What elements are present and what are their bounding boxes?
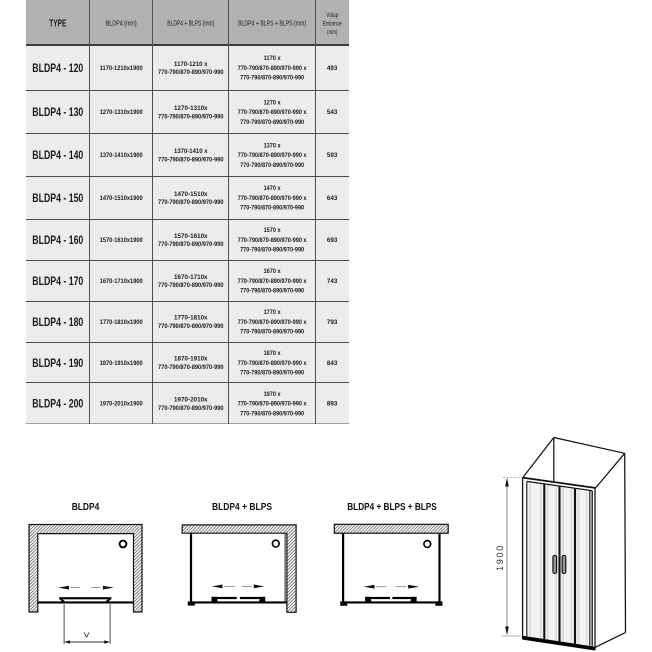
svg-text:643: 643: [327, 195, 338, 202]
svg-text:1870-1910x1900: 1870-1910x1900: [100, 360, 144, 367]
svg-text:1970 x: 1970 x: [264, 391, 281, 398]
svg-text:1370-1410 x: 1370-1410 x: [174, 148, 208, 155]
svg-text:543: 543: [327, 109, 338, 116]
svg-text:Vstup: Vstup: [326, 12, 338, 19]
svg-text:BLDP4 (mm): BLDP4 (mm): [106, 19, 137, 28]
svg-text:TYPE: TYPE: [49, 19, 66, 30]
svg-text:1470-1510x: 1470-1510x: [174, 191, 208, 198]
svg-text:BLDP4 - 200: BLDP4 - 200: [32, 399, 83, 411]
svg-text:BLDP4 - 130: BLDP4 - 130: [32, 107, 83, 119]
svg-text:493: 493: [327, 65, 338, 72]
svg-text:1370-1410x1900: 1370-1410x1900: [100, 152, 144, 159]
svg-text:(mm): (mm): [327, 29, 338, 36]
svg-text:770-790/870-890/970-990 x: 770-790/870-890/970-990 x: [238, 360, 307, 367]
svg-text:BLDP4 - 160: BLDP4 - 160: [32, 235, 83, 247]
svg-text:1900: 1900: [495, 544, 505, 571]
svg-text:1270-1310x: 1270-1310x: [174, 105, 208, 112]
svg-text:770-790/870-890/970-990 x: 770-790/870-890/970-990 x: [238, 195, 307, 202]
svg-text:770-790/870-890/970-990: 770-790/870-890/970-990: [240, 205, 304, 212]
svg-text:1370 x: 1370 x: [264, 142, 281, 149]
svg-text:770-790/870-890/970-990: 770-790/870-890/970-990: [158, 113, 224, 120]
svg-text:1670-1710x1900: 1670-1710x1900: [100, 278, 144, 285]
svg-text:1770 x: 1770 x: [264, 309, 281, 316]
svg-text:BLDP4 - 180: BLDP4 - 180: [32, 317, 83, 329]
svg-text:BLDP4 - 170: BLDP4 - 170: [32, 276, 83, 288]
svg-text:BLDP4 - 190: BLDP4 - 190: [32, 358, 83, 370]
svg-text:1270 x: 1270 x: [264, 100, 281, 107]
svg-text:BLDP4 - 120: BLDP4 - 120: [32, 63, 83, 75]
svg-text:770-790/870-890/970-990: 770-790/870-890/970-990: [158, 405, 224, 412]
svg-text:1770-1810x: 1770-1810x: [174, 315, 208, 322]
svg-text:770-790/870-890/970-990: 770-790/870-890/970-990: [158, 364, 224, 371]
svg-text:770-790/870-890/970-990: 770-790/870-890/970-990: [158, 156, 224, 163]
svg-text:770-790/870-890/970-990 x: 770-790/870-890/970-990 x: [238, 65, 307, 72]
svg-text:770-790/870-890/970-990: 770-790/870-890/970-990: [240, 369, 304, 376]
svg-text:1570 x: 1570 x: [264, 227, 281, 234]
svg-text:BLDP4 - 150: BLDP4 - 150: [32, 193, 83, 205]
svg-text:1170-1210x1900: 1170-1210x1900: [100, 65, 144, 72]
svg-text:V: V: [84, 633, 90, 640]
svg-text:1570-1610x1900: 1570-1610x1900: [100, 237, 144, 244]
svg-text:693: 693: [327, 237, 338, 244]
svg-text:743: 743: [327, 278, 338, 285]
svg-text:770-790/870-890/970-990: 770-790/870-890/970-990: [240, 410, 304, 417]
svg-text:793: 793: [327, 319, 338, 326]
svg-text:Entrance: Entrance: [323, 21, 342, 28]
svg-text:BLDP4 + BLPS (mm): BLDP4 + BLPS (mm): [167, 19, 214, 28]
svg-text:1870-1910x: 1870-1910x: [174, 356, 208, 363]
svg-text:1170-1210 x: 1170-1210 x: [174, 61, 208, 68]
svg-text:1870 x: 1870 x: [264, 350, 281, 357]
svg-text:770-790/870-890/970-990: 770-790/870-890/970-990: [240, 329, 304, 336]
svg-text:770-790/870-890/970-990 x: 770-790/870-890/970-990 x: [238, 109, 307, 116]
svg-text:770-790/870-890/970-990: 770-790/870-890/970-990: [158, 282, 224, 289]
svg-text:770-790/870-890/970-990: 770-790/870-890/970-990: [240, 162, 304, 169]
svg-text:593: 593: [327, 152, 338, 159]
svg-text:1670 x: 1670 x: [264, 268, 281, 275]
svg-text:770-790/870-890/970-990 x: 770-790/870-890/970-990 x: [238, 152, 307, 159]
svg-text:843: 843: [327, 360, 338, 367]
svg-text:770-790/870-890/970-990: 770-790/870-890/970-990: [158, 199, 224, 206]
svg-text:1570-1610x: 1570-1610x: [174, 233, 208, 240]
svg-text:893: 893: [327, 401, 338, 408]
svg-text:770-790/870-890/970-990 x: 770-790/870-890/970-990 x: [238, 401, 307, 408]
svg-text:1170 x: 1170 x: [264, 55, 282, 62]
svg-text:770-790/870-890/970-990: 770-790/870-890/970-990: [240, 75, 304, 82]
svg-text:770-790/870-890/970-990: 770-790/870-890/970-990: [158, 69, 224, 76]
svg-text:1470 x: 1470 x: [264, 185, 281, 192]
svg-text:770-790/870-890/970-990: 770-790/870-890/970-990: [158, 323, 224, 330]
svg-text:770-790/870-890/970-990: 770-790/870-890/970-990: [158, 241, 224, 248]
svg-text:770-790/870-890/970-990 x: 770-790/870-890/970-990 x: [238, 319, 307, 326]
svg-text:1470-1510x1900: 1470-1510x1900: [100, 195, 144, 202]
svg-text:BLDP4: BLDP4: [72, 501, 100, 513]
svg-text:1770-1810x1900: 1770-1810x1900: [100, 319, 144, 326]
svg-text:BLDP4 - 140: BLDP4 - 140: [32, 150, 83, 162]
svg-text:1270-1310x1900: 1270-1310x1900: [100, 109, 144, 116]
svg-text:1970-2010x1900: 1970-2010x1900: [100, 401, 144, 408]
svg-text:770-790/870-890/970-990: 770-790/870-890/970-990: [240, 119, 304, 126]
svg-text:770-790/870-890/970-990: 770-790/870-890/970-990: [240, 247, 304, 254]
svg-text:BLDP4 + BLPS + BLPS (mm): BLDP4 + BLPS + BLPS (mm): [238, 19, 306, 28]
svg-text:770-790/870-890/970-990 x: 770-790/870-890/970-990 x: [238, 237, 307, 244]
svg-text:770-790/870-890/970-990: 770-790/870-890/970-990: [240, 288, 304, 295]
svg-text:1670-1710x: 1670-1710x: [174, 274, 208, 281]
svg-text:BLDP4 + BLPS: BLDP4 + BLPS: [212, 501, 272, 513]
svg-text:770-790/870-890/970-990 x: 770-790/870-890/970-990 x: [238, 278, 307, 285]
svg-text:1970-2010x: 1970-2010x: [174, 397, 208, 404]
svg-text:BLDP4 + BLPS + BLPS: BLDP4 + BLPS + BLPS: [347, 501, 437, 513]
